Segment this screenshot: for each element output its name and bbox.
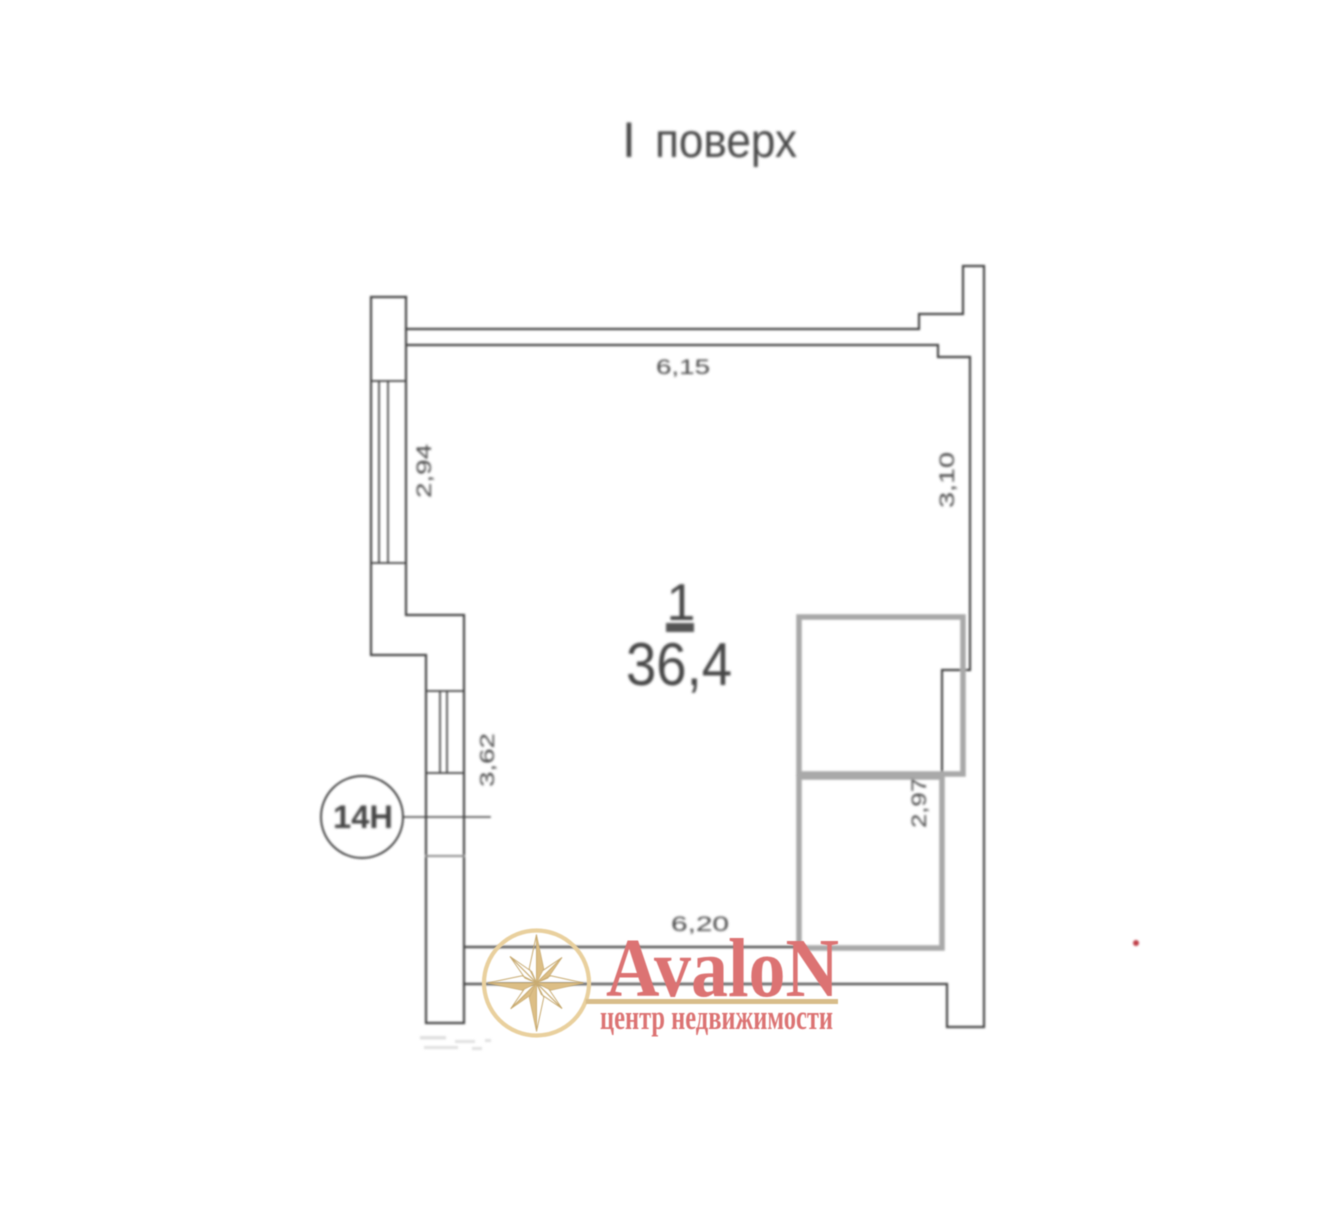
svg-text:поверх: поверх (655, 115, 797, 168)
svg-text:2,94: 2,94 (413, 444, 436, 498)
svg-text:3,10: 3,10 (936, 452, 959, 508)
svg-text:2,97: 2,97 (908, 778, 931, 828)
svg-text:центр недвижимости: центр недвижимости (600, 998, 833, 1037)
svg-text:6,15: 6,15 (656, 356, 710, 379)
svg-text:І: І (622, 112, 636, 168)
svg-text:36,4: 36,4 (626, 631, 732, 698)
svg-text:3,62: 3,62 (477, 733, 499, 787)
svg-text:14Н: 14Н (333, 799, 393, 835)
